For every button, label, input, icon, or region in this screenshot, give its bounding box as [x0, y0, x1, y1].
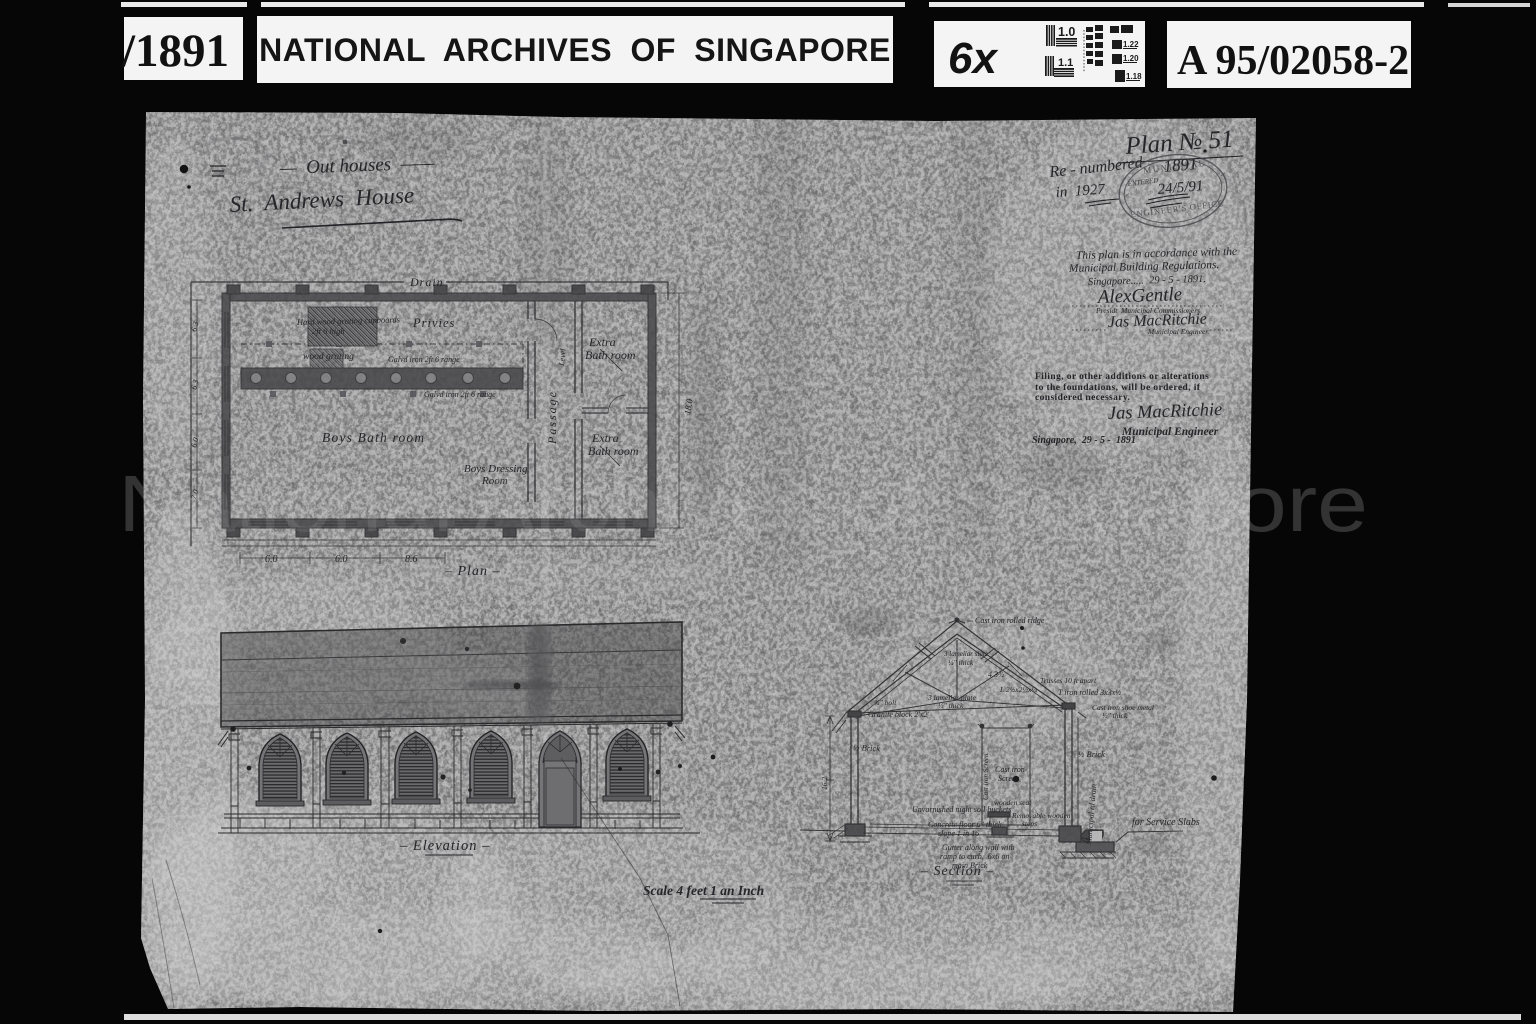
svg-text:Cast iron Screen: Cast iron Screen [982, 753, 990, 800]
svg-text:/1891: /1891 [121, 25, 229, 77]
svg-text:¾" bolt: ¾" bolt [874, 698, 897, 707]
svg-text:L 2½x2½x¼: L 2½x2½x¼ [999, 685, 1037, 694]
svg-text:½ Brick: ½ Brick [1078, 749, 1105, 759]
svg-text:1.0: 1.0 [1058, 25, 1075, 39]
svg-text:6.0: 6.0 [335, 554, 348, 565]
svg-text:T iron rolled 3x3x½: T iron rolled 3x3x½ [1058, 688, 1121, 697]
svg-text:6x: 6x [948, 34, 998, 83]
svg-text:to the foundations, will be or: to the foundations, will be ordered, if [1035, 383, 1201, 393]
svg-text:wood grating: wood grating [303, 352, 354, 362]
svg-text:Drain: Drain [409, 275, 444, 289]
svg-text:– Elevation –: – Elevation – [399, 838, 490, 854]
svg-text:Galvd iron 2ft 6 range: Galvd iron 2ft 6 range [424, 390, 496, 399]
svg-text:considered necessary.: considered necessary. [1035, 393, 1130, 403]
svg-text:Granite block 2'x2': Granite block 2'x2' [868, 710, 929, 719]
svg-text:Singapore, 29 - 5 - 1891: Singapore, 29 - 5 - 1891 [1032, 435, 1136, 446]
svg-text:Scale 4 feet 1 an Inch: Scale 4 feet 1 an Inch [643, 883, 764, 898]
svg-text:steps: steps [1022, 819, 1037, 828]
svg-text:16.2: 16.2 [820, 777, 829, 790]
svg-text:Privies: Privies [412, 316, 455, 330]
svg-text:A 95/02058-2: A 95/02058-2 [1177, 38, 1409, 84]
svg-text:1.1: 1.1 [1058, 57, 1073, 69]
svg-text:6.0: 6.0 [265, 554, 278, 565]
svg-text:Filing, or other additions or: Filing, or other additions or alteration… [1035, 372, 1209, 382]
svg-text:1891: 1891 [1163, 154, 1199, 176]
svg-text:Municipal Engineer.: Municipal Engineer. [1147, 327, 1209, 336]
svg-text:½" thick: ½" thick [1102, 711, 1128, 720]
svg-text:National Archives of Singapore: National Archives of Singapore [118, 459, 1368, 548]
svg-text:ramp to curb, 6x6 on: ramp to curb, 6x6 on [940, 852, 1009, 861]
svg-text:½ Brick: ½ Brick [853, 742, 881, 753]
svg-text:for Service Slabs: for Service Slabs [1132, 817, 1200, 828]
svg-text:4.3¾: 4.3¾ [988, 670, 1004, 679]
svg-text:1.18: 1.18 [1126, 72, 1142, 81]
svg-text:– Section –: – Section – [920, 864, 994, 879]
svg-text:Extra: Extra [591, 431, 619, 445]
svg-text:Cast iron rolled ridge: Cast iron rolled ridge [975, 616, 1045, 625]
svg-text:Removable wooden: Removable wooden [1011, 811, 1071, 820]
svg-text:Extra: Extra [588, 335, 616, 349]
svg-text:Bath room: Bath room [588, 444, 639, 458]
svg-text:1.22: 1.22 [1123, 40, 1139, 49]
svg-text:Boys Bath room: Boys Bath room [322, 430, 425, 445]
svg-text:Concrete floor 6" thick: Concrete floor 6" thick [928, 820, 1002, 829]
svg-text:Jas MacRitchie: Jas MacRitchie [1107, 400, 1222, 424]
svg-text:Cast iron: Cast iron [995, 765, 1025, 774]
svg-text:AlexGentle: AlexGentle [1095, 284, 1182, 308]
svg-text:slope 1 in 16: slope 1 in 16 [938, 829, 979, 838]
svg-text:½" thick: ½" thick [938, 701, 964, 710]
svg-text:Passage: Passage [545, 390, 559, 445]
svg-text:1.20: 1.20 [1123, 54, 1139, 63]
svg-text:Unvarnished night soil buckets: Unvarnished night soil buckets [912, 805, 1011, 814]
svg-text:3 lamellar slats: 3 lamellar slats [943, 650, 988, 658]
svg-text:NATIONAL ARCHIVES OF SINGAPORE: NATIONAL ARCHIVES OF SINGAPORE [259, 32, 891, 68]
svg-text:2ft 6 high: 2ft 6 high [312, 326, 345, 336]
svg-text:¼" thick: ¼" thick [948, 658, 974, 667]
svg-text:Trusses 10 ft apart: Trusses 10 ft apart [1040, 676, 1097, 685]
svg-text:Level: Level [557, 347, 568, 367]
svg-text:8.6: 8.6 [405, 554, 418, 565]
svg-text:Gutter along wall with: Gutter along wall with [942, 843, 1015, 852]
svg-text:– Plan –: – Plan – [444, 564, 500, 579]
svg-text:Galvd iron 2ft 6 range: Galvd iron 2ft 6 range [388, 355, 460, 364]
